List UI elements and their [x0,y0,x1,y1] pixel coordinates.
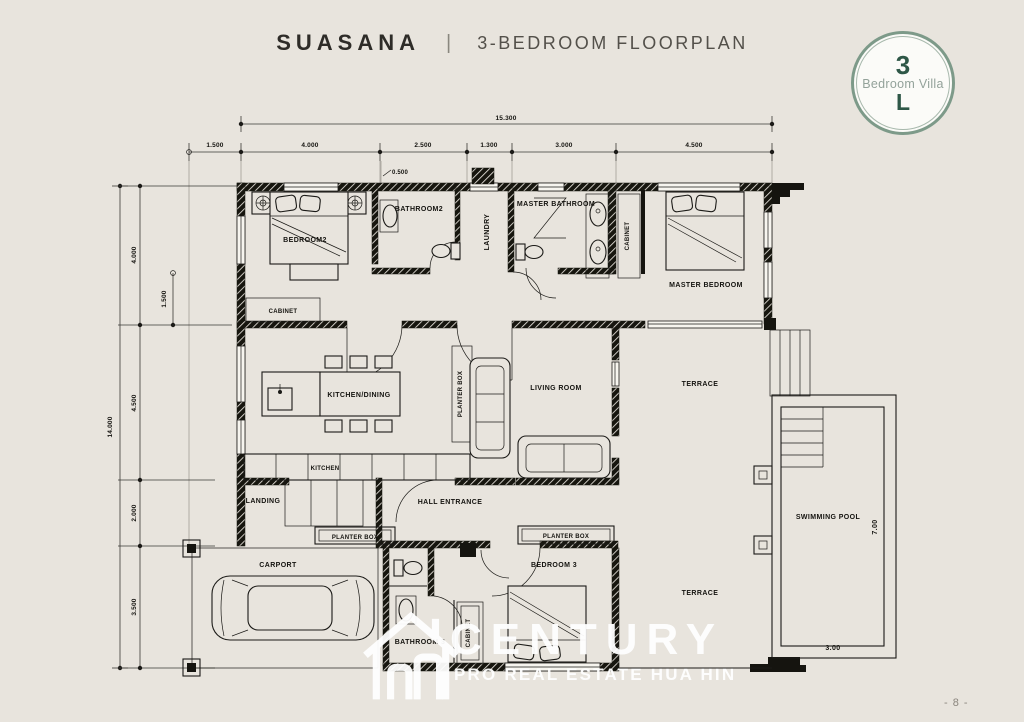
label-bathroom2: BATHROOM2 [395,206,443,213]
toilet-icon [516,244,543,260]
stairs-icon [770,330,810,396]
room-bathroom3: BATHROOM 3 [394,560,445,646]
dim-left-2: 4.500 [131,394,138,411]
label-living-room: LIVING ROOM [530,385,581,392]
floorplan-drawing: 15.300 1.500 4.000 2.500 1.300 3.000 4.5… [0,0,1024,722]
sink-icon [396,596,416,624]
toilet-icon [432,243,460,259]
dim-left-overall: 14.000 [107,416,114,437]
label-cabinet-bedroom2: CABINET [269,309,298,315]
column-icon [183,540,200,676]
room-living: PLANTER BOX LIVING ROOM [452,346,610,478]
room-master-bedroom: MASTER BEDROOM [666,192,744,289]
dim-left-3: 2.000 [131,504,138,521]
dim-top-3: 2.500 [414,142,431,149]
kitchen-counter-icon [244,454,470,480]
label-carport: CARPORT [259,562,297,569]
label-master-bedroom: MASTER BEDROOM [669,282,743,289]
dim-top-4: 1.300 [480,142,497,149]
label-hall-entrance: HALL ENTRANCE [418,499,483,506]
label-kitchen-dining: KITCHEN/DINING [327,392,390,399]
sink-icon [380,200,398,232]
dim-top-minor: 0.500 [392,170,408,176]
room-master-bathroom: MASTER BATHROOM CABINET [516,194,640,278]
room-kitchen-dining: KITCHEN/DINING KITCHEN [244,356,470,480]
room-bathroom2: BATHROOM2 LAUNDRY [380,200,491,259]
dim-left-4: 3.500 [131,598,138,615]
toilet-icon [394,560,422,576]
label-kitchen: KITCHEN [311,466,340,472]
swimming-pool: SWIMMING POOL 7.00 3.00 [772,395,896,658]
bed-icon [508,586,586,662]
dim-left-minor: 1.500 [161,290,168,307]
label-cabinet-master: CABINET [625,222,631,251]
dim-left-1: 4.000 [131,246,138,263]
page-number: - 8 - [944,697,969,709]
label-bedroom3: BEDROOM 3 [531,562,577,569]
label-swimming-pool: SWIMMING POOL [796,514,861,521]
bed-icon [270,192,348,280]
dim-top-1: 1.500 [206,142,223,149]
label-master-bathroom: MASTER BATHROOM [517,201,595,208]
planter-box-right: PLANTER BOX [518,526,614,544]
sofa-icon [470,358,510,458]
label-terrace-upper: TERRACE [682,381,719,388]
door-arcs [347,242,556,624]
label-bathroom3: BATHROOM 3 [395,639,446,646]
label-planter-left: PLANTER BOX [332,535,378,541]
roof-corner-top [772,183,804,204]
dim-pool-length: 7.00 [872,519,879,534]
column-icon [754,466,772,554]
label-cabinet-bedroom3: CABINET [466,619,472,648]
bed-icon [666,192,744,270]
floorplan-page: SUASANA | 3-BEDROOM FLOORPLAN 3 Bedroom … [0,0,1024,722]
steps-icon [285,480,363,526]
sofa-icon [518,436,610,478]
pool-steps-icon [781,407,823,467]
label-planter-living: PLANTER BOX [458,371,464,417]
room-hall-landing: LANDING HALL ENTRANCE PLANTER BOX PLANTE… [246,480,614,544]
room-bedroom3: CABINET BEDROOM 3 [457,562,586,664]
label-bedroom2: BEDROOM2 [283,237,327,244]
dim-top-overall: 15.300 [495,115,516,122]
terrace-areas: TERRACE TERRACE [682,330,810,597]
dim-top-2: 4.000 [301,142,318,149]
label-terrace-lower: TERRACE [682,590,719,597]
car-icon [212,576,374,640]
dim-top-5: 3.000 [555,142,572,149]
dim-pool-width: 3.00 [825,645,840,652]
label-landing: LANDING [246,498,281,505]
room-bedroom2: BEDROOM2 CABINET [246,192,366,322]
room-carport: CARPORT [183,540,378,676]
label-planter-right: PLANTER BOX [543,534,589,540]
dim-top-6: 4.500 [685,142,702,149]
roof-corner-bottom [750,657,806,672]
label-laundry: LAUNDRY [484,214,491,251]
